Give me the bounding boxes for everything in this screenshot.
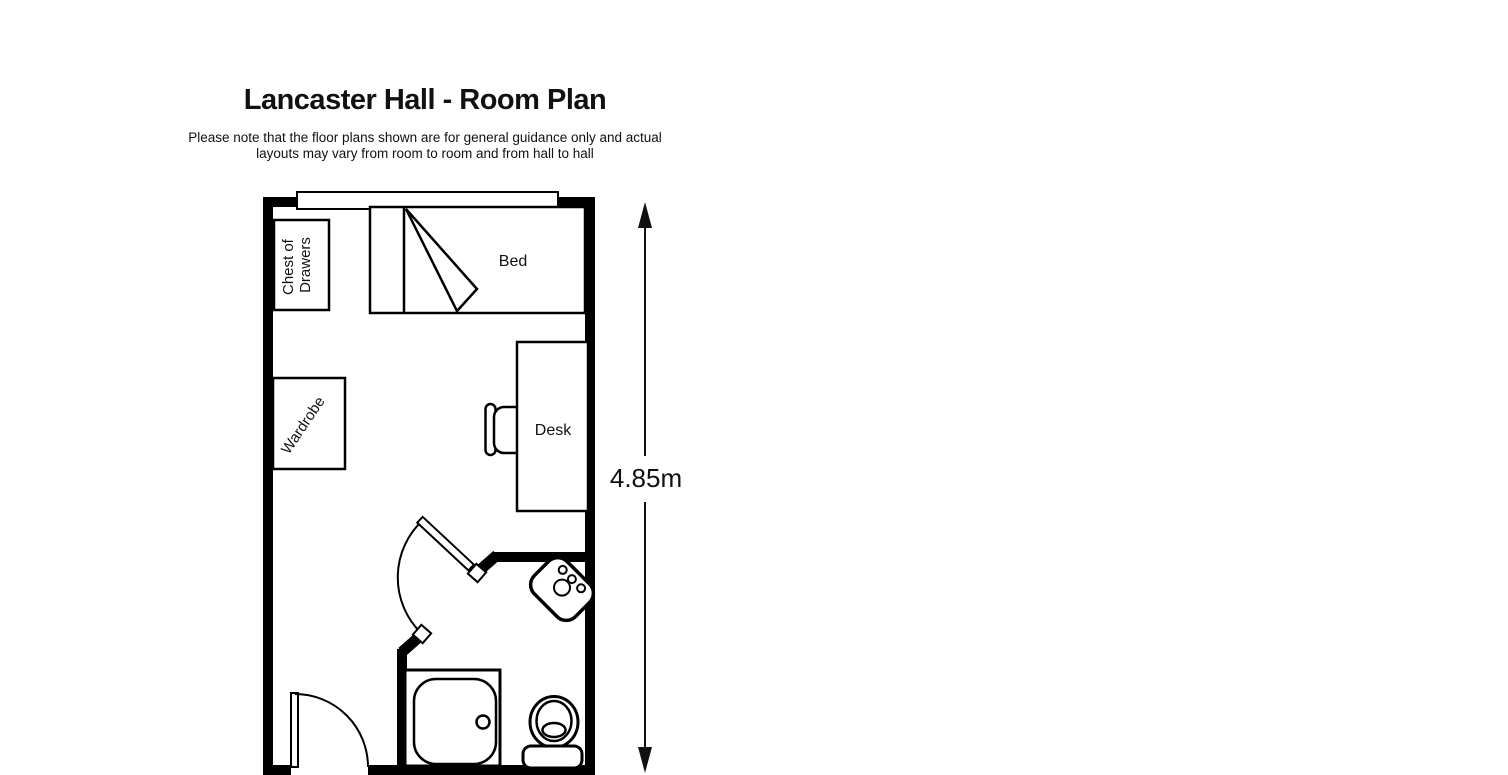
chest-of-drawers-label: Chest of Drawers — [280, 235, 314, 295]
dimension-arrowhead-up-icon — [638, 202, 652, 228]
bathroom-wall-horizontal — [493, 552, 595, 562]
shower-icon — [405, 670, 500, 766]
page: Lancaster Hall - Room Plan Please note t… — [0, 0, 1508, 775]
toilet-icon — [523, 697, 582, 769]
dimension-label: 4.85m — [610, 463, 682, 493]
entry-door-swing-arc — [295, 694, 368, 767]
wall-bottom-left-segment — [263, 765, 291, 775]
bathroom-door-leaf — [417, 517, 474, 571]
chest-of-drawers-label-line2: Drawers — [297, 237, 314, 293]
bed: Bed — [370, 207, 585, 313]
bathroom-wall-stub-top — [480, 555, 497, 570]
entry-door-leaf — [291, 693, 298, 767]
chest-of-drawers: Chest of Drawers — [274, 220, 329, 310]
toilet-cistern — [523, 746, 582, 768]
bathroom-door-swing-arc — [398, 520, 423, 633]
chest-of-drawers-label-line1: Chest of — [280, 238, 297, 295]
bed-outline — [370, 207, 585, 313]
desk: Desk — [517, 342, 588, 511]
wardrobe: Wardrobe — [273, 378, 345, 469]
toilet-water — [543, 723, 566, 737]
shower-drain — [477, 716, 490, 729]
wall-left — [263, 197, 273, 775]
bathroom-door-icon — [398, 517, 486, 643]
dimension-arrowhead-down-icon — [638, 747, 652, 773]
floor-plan: Chest of Drawers Bed Wardrobe Desk — [0, 0, 1508, 775]
bed-label: Bed — [499, 253, 527, 270]
entry-door-icon — [291, 693, 368, 767]
dimension-arrow: 4.85m — [610, 202, 682, 773]
desk-label: Desk — [535, 422, 572, 439]
